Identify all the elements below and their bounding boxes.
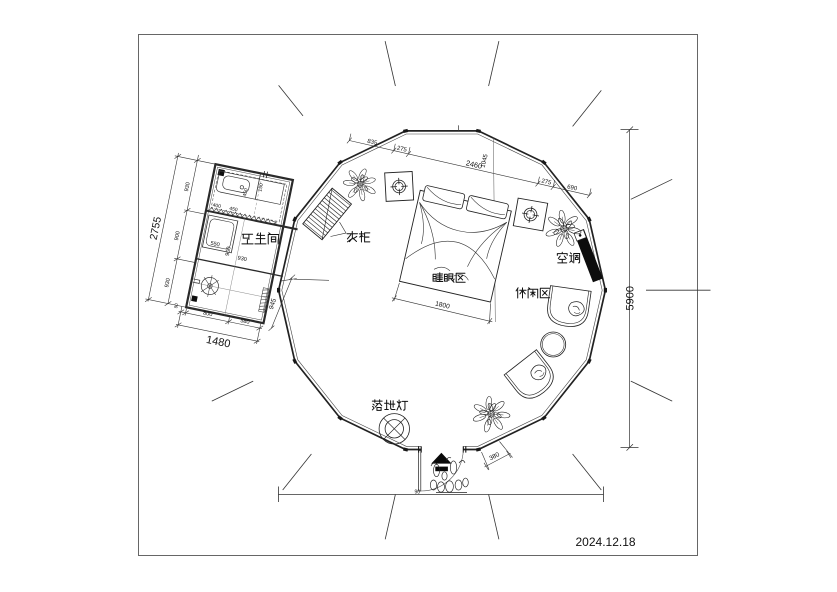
- svg-text:90: 90: [415, 490, 421, 496]
- svg-text:2024.12.18: 2024.12.18: [576, 535, 636, 549]
- svg-text:5900: 5900: [625, 286, 637, 310]
